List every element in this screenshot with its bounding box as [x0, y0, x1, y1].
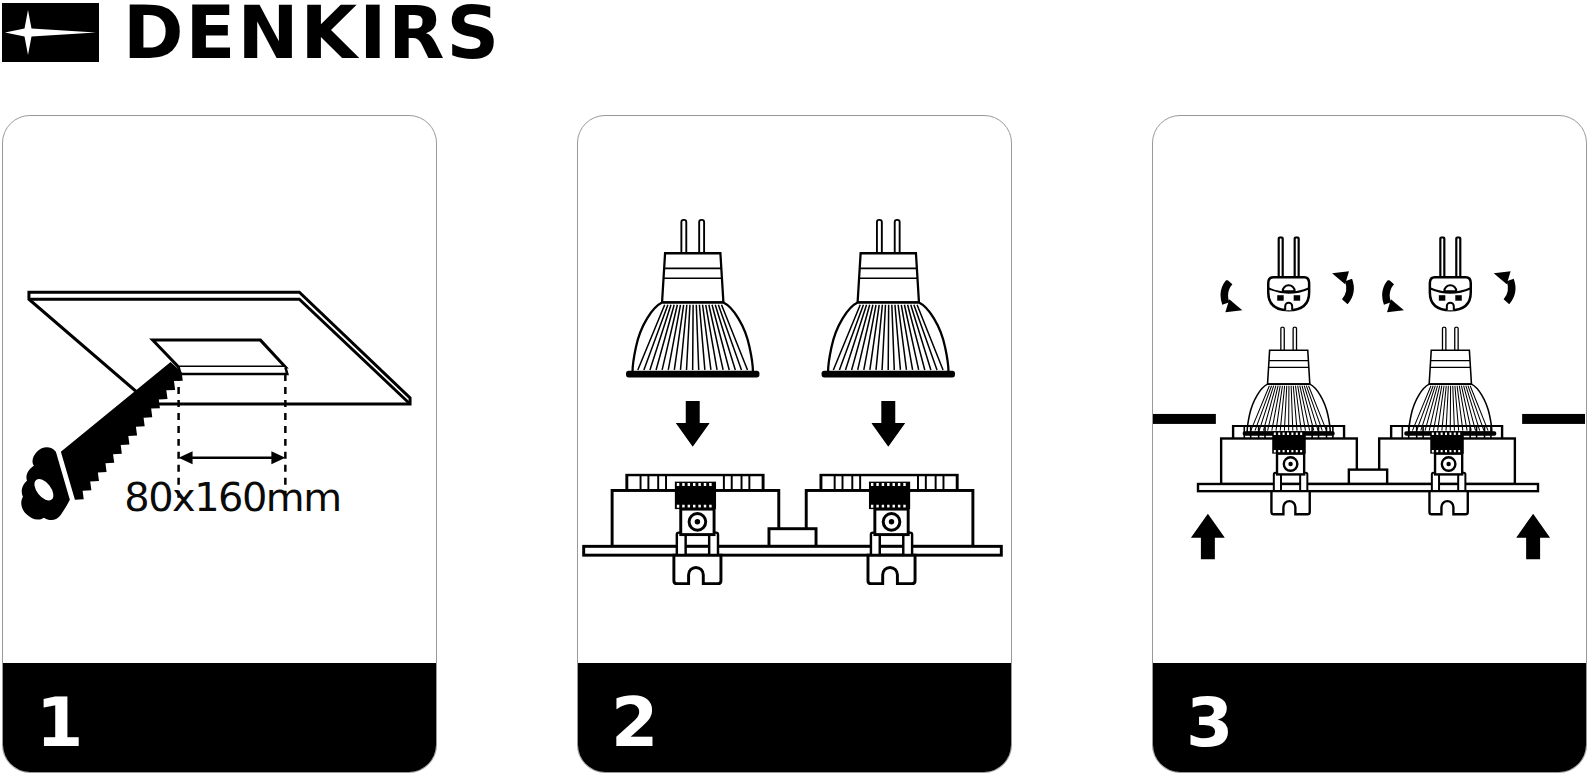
lamp-right-icon — [822, 220, 955, 378]
step-panel-1: 80x160mm 1 — [2, 115, 437, 773]
cut-opening-illustration: 80x160mm — [3, 116, 435, 665]
rotate-ccw-arrow-right-icon — [1494, 271, 1512, 301]
fixture-in-ceiling-illustration — [1198, 426, 1538, 515]
step-number-2: 2 — [578, 679, 658, 757]
rotate-cw-arrow-right-icon — [1386, 282, 1404, 312]
socket-left-icon — [1268, 237, 1309, 310]
step-footer-1: 1 — [3, 663, 436, 772]
rotate-ccw-arrow-left-icon — [1332, 271, 1350, 301]
fixture-illustration — [584, 475, 1002, 584]
step-panel-3: 3 — [1152, 115, 1587, 773]
socket-right-icon — [1430, 237, 1471, 310]
lamp-left-icon — [626, 220, 759, 378]
step-number-3: 3 — [1153, 679, 1233, 757]
denkirs-logo-star-icon — [2, 3, 99, 62]
step-panel-2: 2 — [577, 115, 1012, 773]
connect-and-mount-illustration — [1153, 116, 1585, 665]
installed-lamp-right-icon — [1404, 327, 1496, 436]
down-arrow-right-icon — [871, 401, 905, 447]
ceiling-bar-left — [1153, 414, 1216, 424]
instruction-sheet: { "brand": { "name": "DENKIRS", "logo_ic… — [0, 0, 1588, 779]
rotate-cw-arrow-left-icon — [1224, 282, 1242, 312]
up-arrow-left-icon — [1191, 514, 1225, 560]
insert-lamps-illustration — [578, 116, 1010, 665]
brand-header: DENKIRS — [2, 1, 501, 63]
down-arrow-left-icon — [676, 401, 710, 447]
step-footer-2: 2 — [578, 663, 1011, 772]
ceiling-bar-right — [1522, 414, 1585, 424]
step-footer-3: 3 — [1153, 663, 1586, 772]
up-arrow-right-icon — [1516, 514, 1550, 560]
step-number-1: 1 — [3, 679, 83, 757]
cutout-dimension-label: 80x160mm — [124, 474, 340, 520]
brand-name: DENKIRS — [123, 0, 501, 69]
installed-lamp-left-icon — [1243, 327, 1335, 436]
